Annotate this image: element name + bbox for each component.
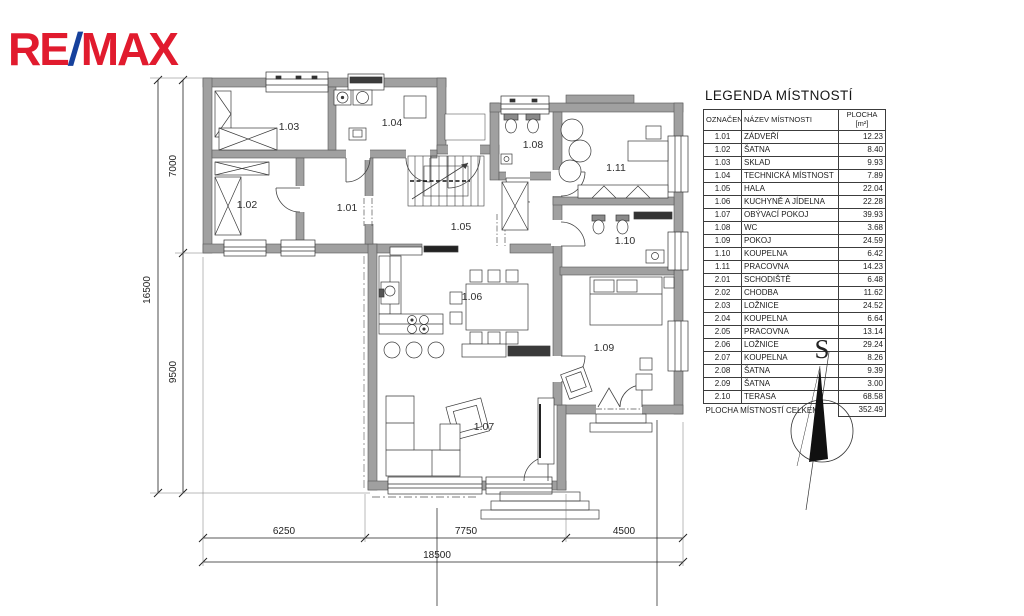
legend-cell-area: 13.14 bbox=[839, 326, 886, 339]
furniture-layer bbox=[215, 90, 674, 476]
legend-row: 2.03LOŽNICE24.52 bbox=[704, 300, 886, 313]
remax-logo: RE/MAX bbox=[8, 26, 177, 72]
legend-header-row: OZNAČENÍ NÁZEV MÍSTNOSTI PLOCHA [m²] bbox=[704, 110, 886, 131]
legend-cell-name: OBÝVACÍ POKOJ bbox=[742, 209, 839, 222]
legend-cell-area: 6.42 bbox=[839, 248, 886, 261]
legend-cell-name: CHODBA bbox=[742, 287, 839, 300]
dim-v-bottom: 9500 bbox=[168, 360, 179, 383]
legend-row: 2.07KOUPELNA8.26 bbox=[704, 352, 886, 365]
legend-cell-area: 68.58 bbox=[839, 391, 886, 404]
legend-cell-area: 14.23 bbox=[839, 261, 886, 274]
legend-row: 2.08ŠATNA9.39 bbox=[704, 365, 886, 378]
legend-cell-code: 1.04 bbox=[704, 170, 742, 183]
legend-total-label: PLOCHA MÍSTNOSTÍ CELKEM: bbox=[704, 404, 839, 417]
legend-header-area: PLOCHA [m²] bbox=[839, 110, 886, 131]
legend-cell-name: ZÁDVEŘÍ bbox=[742, 131, 839, 144]
legend-cell-area: 22.04 bbox=[839, 183, 886, 196]
legend-row: 1.09POKOJ24.59 bbox=[704, 235, 886, 248]
legend-body: 1.01ZÁDVEŘÍ12.231.02ŠATNA8.401.03SKLAD9.… bbox=[704, 131, 886, 404]
stairs bbox=[408, 156, 484, 206]
terrace-steps bbox=[364, 256, 652, 519]
legend-cell-name: LOŽNICE bbox=[742, 339, 839, 352]
room-label-1.02: 1.02 bbox=[237, 199, 258, 211]
legend-row: 2.10TERASA68.58 bbox=[704, 391, 886, 404]
room-label-1.07: 1.07 bbox=[474, 421, 495, 433]
legend-cell-code: 2.05 bbox=[704, 326, 742, 339]
dim-h-total: 18500 bbox=[423, 550, 451, 561]
legend-row: 2.06LOŽNICE29.24 bbox=[704, 339, 886, 352]
legend-total-row: PLOCHA MÍSTNOSTÍ CELKEM: 352.49 bbox=[704, 404, 886, 417]
legend-cell-code: 2.02 bbox=[704, 287, 742, 300]
legend-row: 2.05PRACOVNA13.14 bbox=[704, 326, 886, 339]
legend-cell-name: ŠATNA bbox=[742, 365, 839, 378]
legend-cell-area: 9.93 bbox=[839, 157, 886, 170]
logo-re: RE bbox=[8, 23, 68, 75]
legend-cell-name: ŠATNA bbox=[742, 378, 839, 391]
dim-h-right: 4500 bbox=[613, 526, 636, 537]
legend-cell-area: 29.24 bbox=[839, 339, 886, 352]
legend-title: LEGENDA MÍSTNOSTÍ bbox=[705, 88, 889, 103]
dim-v-top: 7000 bbox=[168, 154, 179, 177]
legend-cell-code: 2.08 bbox=[704, 365, 742, 378]
legend-cell-code: 2.07 bbox=[704, 352, 742, 365]
legend-row: 2.02CHODBA11.62 bbox=[704, 287, 886, 300]
room-labels: 1.011.021.031.041.051.061.071.081.091.10… bbox=[237, 117, 636, 433]
legend-cell-name: SKLAD bbox=[742, 157, 839, 170]
legend-cell-code: 1.02 bbox=[704, 144, 742, 157]
legend-cell-name: ŠATNA bbox=[742, 144, 839, 157]
legend-cell-area: 3.68 bbox=[839, 222, 886, 235]
legend-cell-area: 24.59 bbox=[839, 235, 886, 248]
legend-cell-name: KOUPELNA bbox=[742, 352, 839, 365]
room-label-1.05: 1.05 bbox=[451, 221, 472, 233]
room-label-1.09: 1.09 bbox=[594, 342, 615, 354]
legend-cell-name: KOUPELNA bbox=[742, 248, 839, 261]
legend-cell-code: 1.05 bbox=[704, 183, 742, 196]
legend-row: 2.09ŠATNA3.00 bbox=[704, 378, 886, 391]
legend-row: 1.06KUCHYNĚ A JÍDELNA22.28 bbox=[704, 196, 886, 209]
legend-cell-code: 1.10 bbox=[704, 248, 742, 261]
legend-cell-area: 6.64 bbox=[839, 313, 886, 326]
legend-row: 2.01SCHODIŠTĚ6.48 bbox=[704, 274, 886, 287]
legend-cell-code: 2.03 bbox=[704, 300, 742, 313]
legend-row: 1.07OBÝVACÍ POKOJ39.93 bbox=[704, 209, 886, 222]
legend-cell-name: LOŽNICE bbox=[742, 300, 839, 313]
legend-cell-name: SCHODIŠTĚ bbox=[742, 274, 839, 287]
room-label-1.04: 1.04 bbox=[382, 117, 403, 129]
legend-cell-area: 8.40 bbox=[839, 144, 886, 157]
legend-row: 1.11PRACOVNA14.23 bbox=[704, 261, 886, 274]
legend-cell-name: KOUPELNA bbox=[742, 313, 839, 326]
legend-cell-area: 39.93 bbox=[839, 209, 886, 222]
legend-header-area-unit: [m²] bbox=[841, 120, 883, 129]
legend-cell-name: PRACOVNA bbox=[742, 261, 839, 274]
room-label-1.11: 1.11 bbox=[606, 162, 626, 174]
floorplan-page: RE/MAX LEGENDA MÍSTNOSTÍ OZNAČENÍ NÁZEV … bbox=[0, 0, 1024, 616]
logo-max: MAX bbox=[81, 23, 177, 75]
legend-cell-code: 1.09 bbox=[704, 235, 742, 248]
legend-cell-name: TERASA bbox=[742, 391, 839, 404]
legend-row: 1.08WC3.68 bbox=[704, 222, 886, 235]
legend-cell-area: 3.00 bbox=[839, 378, 886, 391]
legend-cell-code: 2.04 bbox=[704, 313, 742, 326]
legend-row: 1.05HALA22.04 bbox=[704, 183, 886, 196]
legend-cell-area: 6.48 bbox=[839, 274, 886, 287]
legend-cell-code: 2.06 bbox=[704, 339, 742, 352]
legend-cell-area: 12.23 bbox=[839, 131, 886, 144]
dim-h-left: 6250 bbox=[273, 526, 296, 537]
legend-cell-area: 9.39 bbox=[839, 365, 886, 378]
legend-cell-code: 2.10 bbox=[704, 391, 742, 404]
legend-cell-code: 2.01 bbox=[704, 274, 742, 287]
legend-cell-area: 24.52 bbox=[839, 300, 886, 313]
room-label-1.06: 1.06 bbox=[462, 291, 483, 303]
legend-cell-code: 1.08 bbox=[704, 222, 742, 235]
legend-cell-code: 1.11 bbox=[704, 261, 742, 274]
walls-layer bbox=[203, 78, 683, 490]
legend-header-name: NÁZEV MÍSTNOSTI bbox=[742, 110, 839, 131]
legend-row: 1.10KOUPELNA6.42 bbox=[704, 248, 886, 261]
legend-cell-name: TECHNICKÁ MÍSTNOST bbox=[742, 170, 839, 183]
legend-cell-area: 7.89 bbox=[839, 170, 886, 183]
wall-openings bbox=[226, 76, 685, 492]
legend-cell-name: PRACOVNA bbox=[742, 326, 839, 339]
legend-cell-area: 8.26 bbox=[839, 352, 886, 365]
room-label-1.08: 1.08 bbox=[523, 139, 544, 151]
dim-v-total: 16500 bbox=[142, 276, 153, 304]
legend-row: 1.03SKLAD9.93 bbox=[704, 157, 886, 170]
legend-cell-code: 2.09 bbox=[704, 378, 742, 391]
dimension-labels: 16500 7000 9500 6250 7750 4500 18500 bbox=[142, 154, 636, 561]
legend-row: 1.01ZÁDVEŘÍ12.23 bbox=[704, 131, 886, 144]
legend-cell-area: 22.28 bbox=[839, 196, 886, 209]
legend-row: 1.02ŠATNA8.40 bbox=[704, 144, 886, 157]
room-label-1.01: 1.01 bbox=[337, 202, 358, 214]
legend-cell-name: WC bbox=[742, 222, 839, 235]
section-lines bbox=[437, 420, 657, 606]
legend-cell-name: POKOJ bbox=[742, 235, 839, 248]
doors-layer bbox=[276, 156, 642, 481]
windows-layer bbox=[224, 72, 688, 494]
legend-cell-code: 1.03 bbox=[704, 157, 742, 170]
room-label-1.10: 1.10 bbox=[615, 235, 636, 247]
room-label-1.03: 1.03 bbox=[279, 121, 300, 133]
legend-panel: LEGENDA MÍSTNOSTÍ OZNAČENÍ NÁZEV MÍSTNOS… bbox=[703, 88, 889, 417]
legend-total-value: 352.49 bbox=[839, 404, 886, 417]
legend-cell-code: 1.01 bbox=[704, 131, 742, 144]
legend-row: 1.04TECHNICKÁ MÍSTNOST7.89 bbox=[704, 170, 886, 183]
legend-cell-code: 1.06 bbox=[704, 196, 742, 209]
legend-row: 2.04KOUPELNA6.64 bbox=[704, 313, 886, 326]
legend-cell-name: KUCHYNĚ A JÍDELNA bbox=[742, 196, 839, 209]
legend-cell-area: 11.62 bbox=[839, 287, 886, 300]
legend-header-code: OZNAČENÍ bbox=[704, 110, 742, 131]
legend-cell-name: HALA bbox=[742, 183, 839, 196]
legend-table: OZNAČENÍ NÁZEV MÍSTNOSTI PLOCHA [m²] 1.0… bbox=[703, 109, 886, 417]
dim-h-mid: 7750 bbox=[455, 526, 478, 537]
legend-cell-code: 1.07 bbox=[704, 209, 742, 222]
dimension-lines bbox=[150, 76, 687, 566]
